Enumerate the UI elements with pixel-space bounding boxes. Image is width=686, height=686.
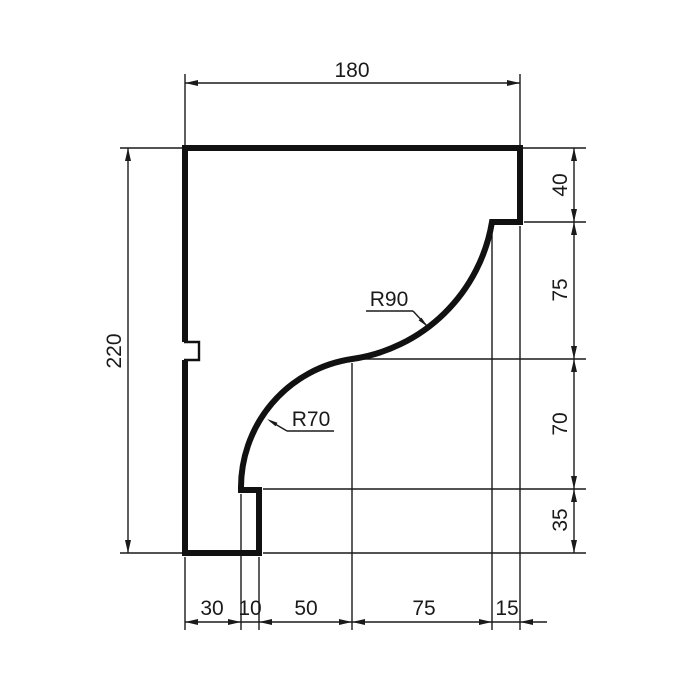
cornice-profile-drawing: 180 220 40 75 70 35 30 10 50 75 15 R90 R… <box>0 0 686 686</box>
dim-arrow <box>185 619 198 625</box>
dim-arrow <box>571 476 577 489</box>
dimension-labels: 180 220 40 75 70 35 30 10 50 75 15 R90 R… <box>103 59 572 620</box>
dim-arrow <box>571 209 577 222</box>
dim-arrow <box>125 148 131 161</box>
technical-drawing-page: 180 220 40 75 70 35 30 10 50 75 15 R90 R… <box>0 0 686 686</box>
dim-label-total-height: 220 <box>103 333 126 368</box>
dim-label-total-width: 180 <box>334 59 369 82</box>
dim-arrow <box>571 359 577 372</box>
dim-arrow <box>571 148 577 161</box>
dim-label-bottom-15: 15 <box>495 597 518 620</box>
dim-arrow <box>339 619 352 625</box>
dimension-lines <box>128 83 574 622</box>
dim-arrow <box>571 346 577 359</box>
dim-label-right-75: 75 <box>549 278 572 301</box>
dim-arrow <box>571 540 577 553</box>
dim-arrow <box>520 619 533 625</box>
radius-label-r90: R90 <box>370 288 409 311</box>
radius-label-r70: R70 <box>292 408 331 431</box>
dim-label-bottom-75: 75 <box>412 597 435 620</box>
dimension-arrows <box>125 80 577 625</box>
dim-arrow <box>352 619 365 625</box>
fixing-notch <box>184 342 199 360</box>
dim-arrow <box>185 80 198 86</box>
dim-arrow <box>479 619 492 625</box>
dim-arrow <box>571 222 577 235</box>
dim-label-right-40: 40 <box>549 173 572 196</box>
dim-arrow <box>125 540 131 553</box>
dim-label-bottom-10: 10 <box>238 597 261 620</box>
dim-label-right-70: 70 <box>549 412 572 435</box>
extension-lines <box>120 74 586 630</box>
dim-label-bottom-50: 50 <box>294 597 317 620</box>
dim-label-bottom-30: 30 <box>200 597 223 620</box>
dim-arrow <box>571 489 577 502</box>
dim-arrow <box>507 80 520 86</box>
leader-arrow <box>267 419 278 426</box>
dim-label-right-35: 35 <box>549 508 572 531</box>
